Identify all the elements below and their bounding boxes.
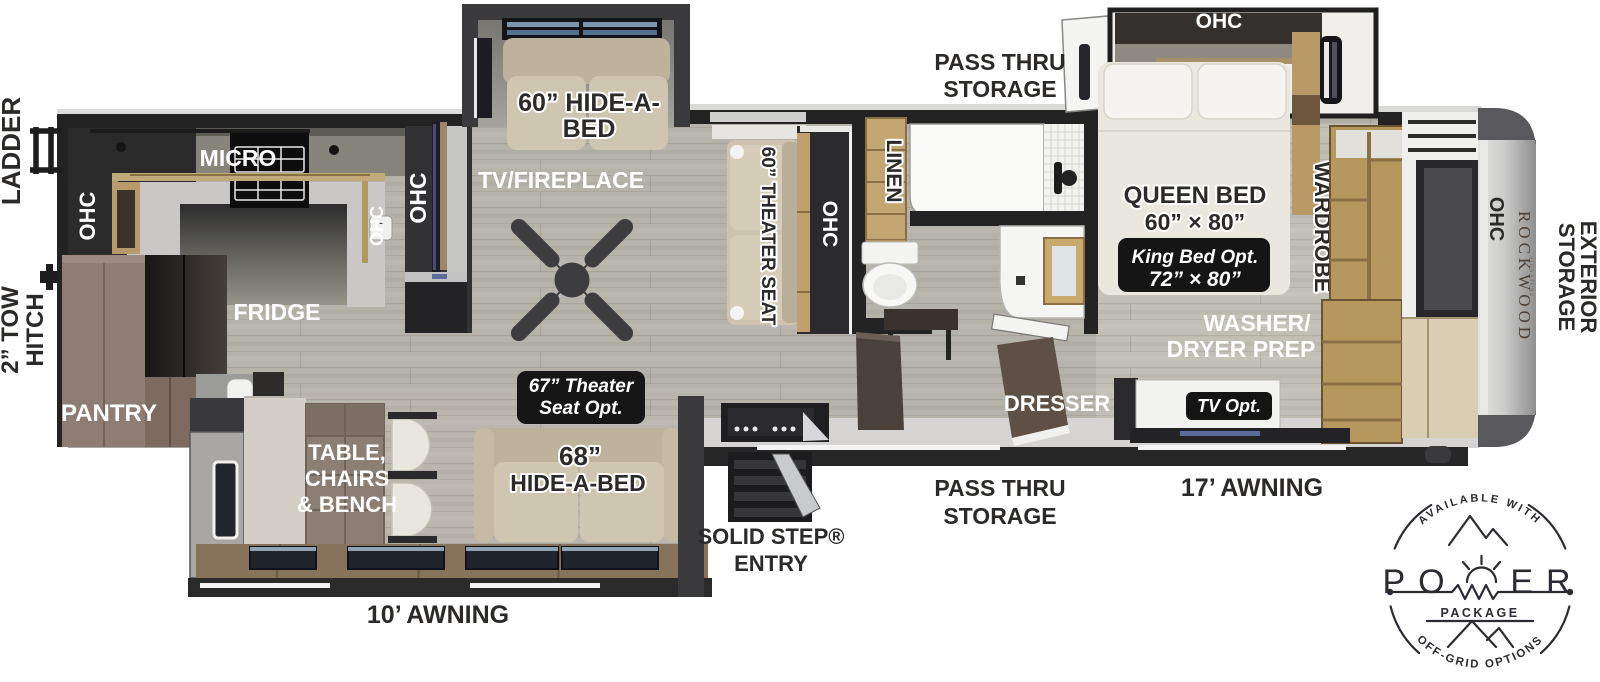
svg-text:STORAGE: STORAGE — [943, 76, 1056, 102]
svg-text:TV/FIREPLACE: TV/FIREPLACE — [478, 167, 644, 193]
svg-text:10’ AWNING: 10’ AWNING — [367, 601, 509, 629]
svg-text:TABLE,: TABLE, — [308, 440, 386, 465]
svg-text:PASS THRU: PASS THRU — [934, 475, 1065, 501]
svg-text:OHC: OHC — [367, 206, 387, 246]
svg-text:PASS THRU: PASS THRU — [934, 49, 1065, 75]
svg-text:60” HIDE-A-: 60” HIDE-A- — [518, 89, 660, 117]
svg-text:WASHER/: WASHER/ — [1203, 310, 1311, 336]
svg-text:Seat Opt.: Seat Opt. — [539, 398, 622, 419]
svg-text:ENTRY: ENTRY — [734, 551, 808, 576]
svg-text:QUEEN BED: QUEEN BED — [1124, 182, 1267, 209]
svg-text:HITCH: HITCH — [22, 293, 49, 366]
svg-text:STORAGE: STORAGE — [1554, 223, 1579, 331]
svg-text:OHC: OHC — [818, 201, 841, 248]
svg-text:MICRO: MICRO — [200, 145, 277, 171]
svg-text:& BENCH: & BENCH — [297, 492, 397, 517]
svg-text:TV Opt.: TV Opt. — [1197, 396, 1261, 416]
svg-text:SOLID STEP®: SOLID STEP® — [697, 524, 844, 549]
svg-text:PO: PO — [1382, 563, 1457, 601]
svg-text:BED: BED — [563, 115, 616, 143]
svg-text:LADDER: LADDER — [0, 97, 26, 206]
svg-text:CHAIRS: CHAIRS — [305, 466, 389, 491]
svg-text:OHC: OHC — [405, 172, 431, 223]
svg-text:SIGNATURE: SIGNATURE — [1528, 256, 1533, 297]
svg-text:LINEN: LINEN — [882, 140, 905, 203]
svg-text:DRESSER: DRESSER — [1004, 391, 1110, 416]
svg-text:STORAGE: STORAGE — [943, 503, 1056, 529]
svg-text:17’ AWNING: 17’ AWNING — [1181, 474, 1323, 502]
svg-text:67” Theater: 67” Theater — [529, 376, 635, 397]
svg-text:OHC: OHC — [1196, 10, 1243, 33]
svg-text:PANTRY: PANTRY — [61, 400, 157, 427]
svg-text:ER: ER — [1510, 563, 1583, 601]
svg-text:60” × 80”: 60” × 80” — [1145, 209, 1245, 235]
svg-text:OHC: OHC — [75, 191, 100, 240]
svg-text:HIDE-A-BED: HIDE-A-BED — [510, 470, 645, 496]
svg-text:PACKAGE: PACKAGE — [1440, 606, 1519, 620]
svg-text:60” THEATER SEAT: 60” THEATER SEAT — [757, 147, 778, 326]
svg-text:DRYER PREP: DRYER PREP — [1167, 336, 1316, 362]
svg-text:OHC: OHC — [1485, 197, 1507, 241]
svg-text:68”: 68” — [559, 441, 601, 471]
svg-text:King Bed Opt.: King Bed Opt. — [1132, 247, 1259, 268]
svg-text:FRIDGE: FRIDGE — [234, 299, 321, 325]
svg-text:2” TOW: 2” TOW — [0, 286, 24, 374]
svg-text:72” × 80”: 72” × 80” — [1149, 268, 1241, 291]
